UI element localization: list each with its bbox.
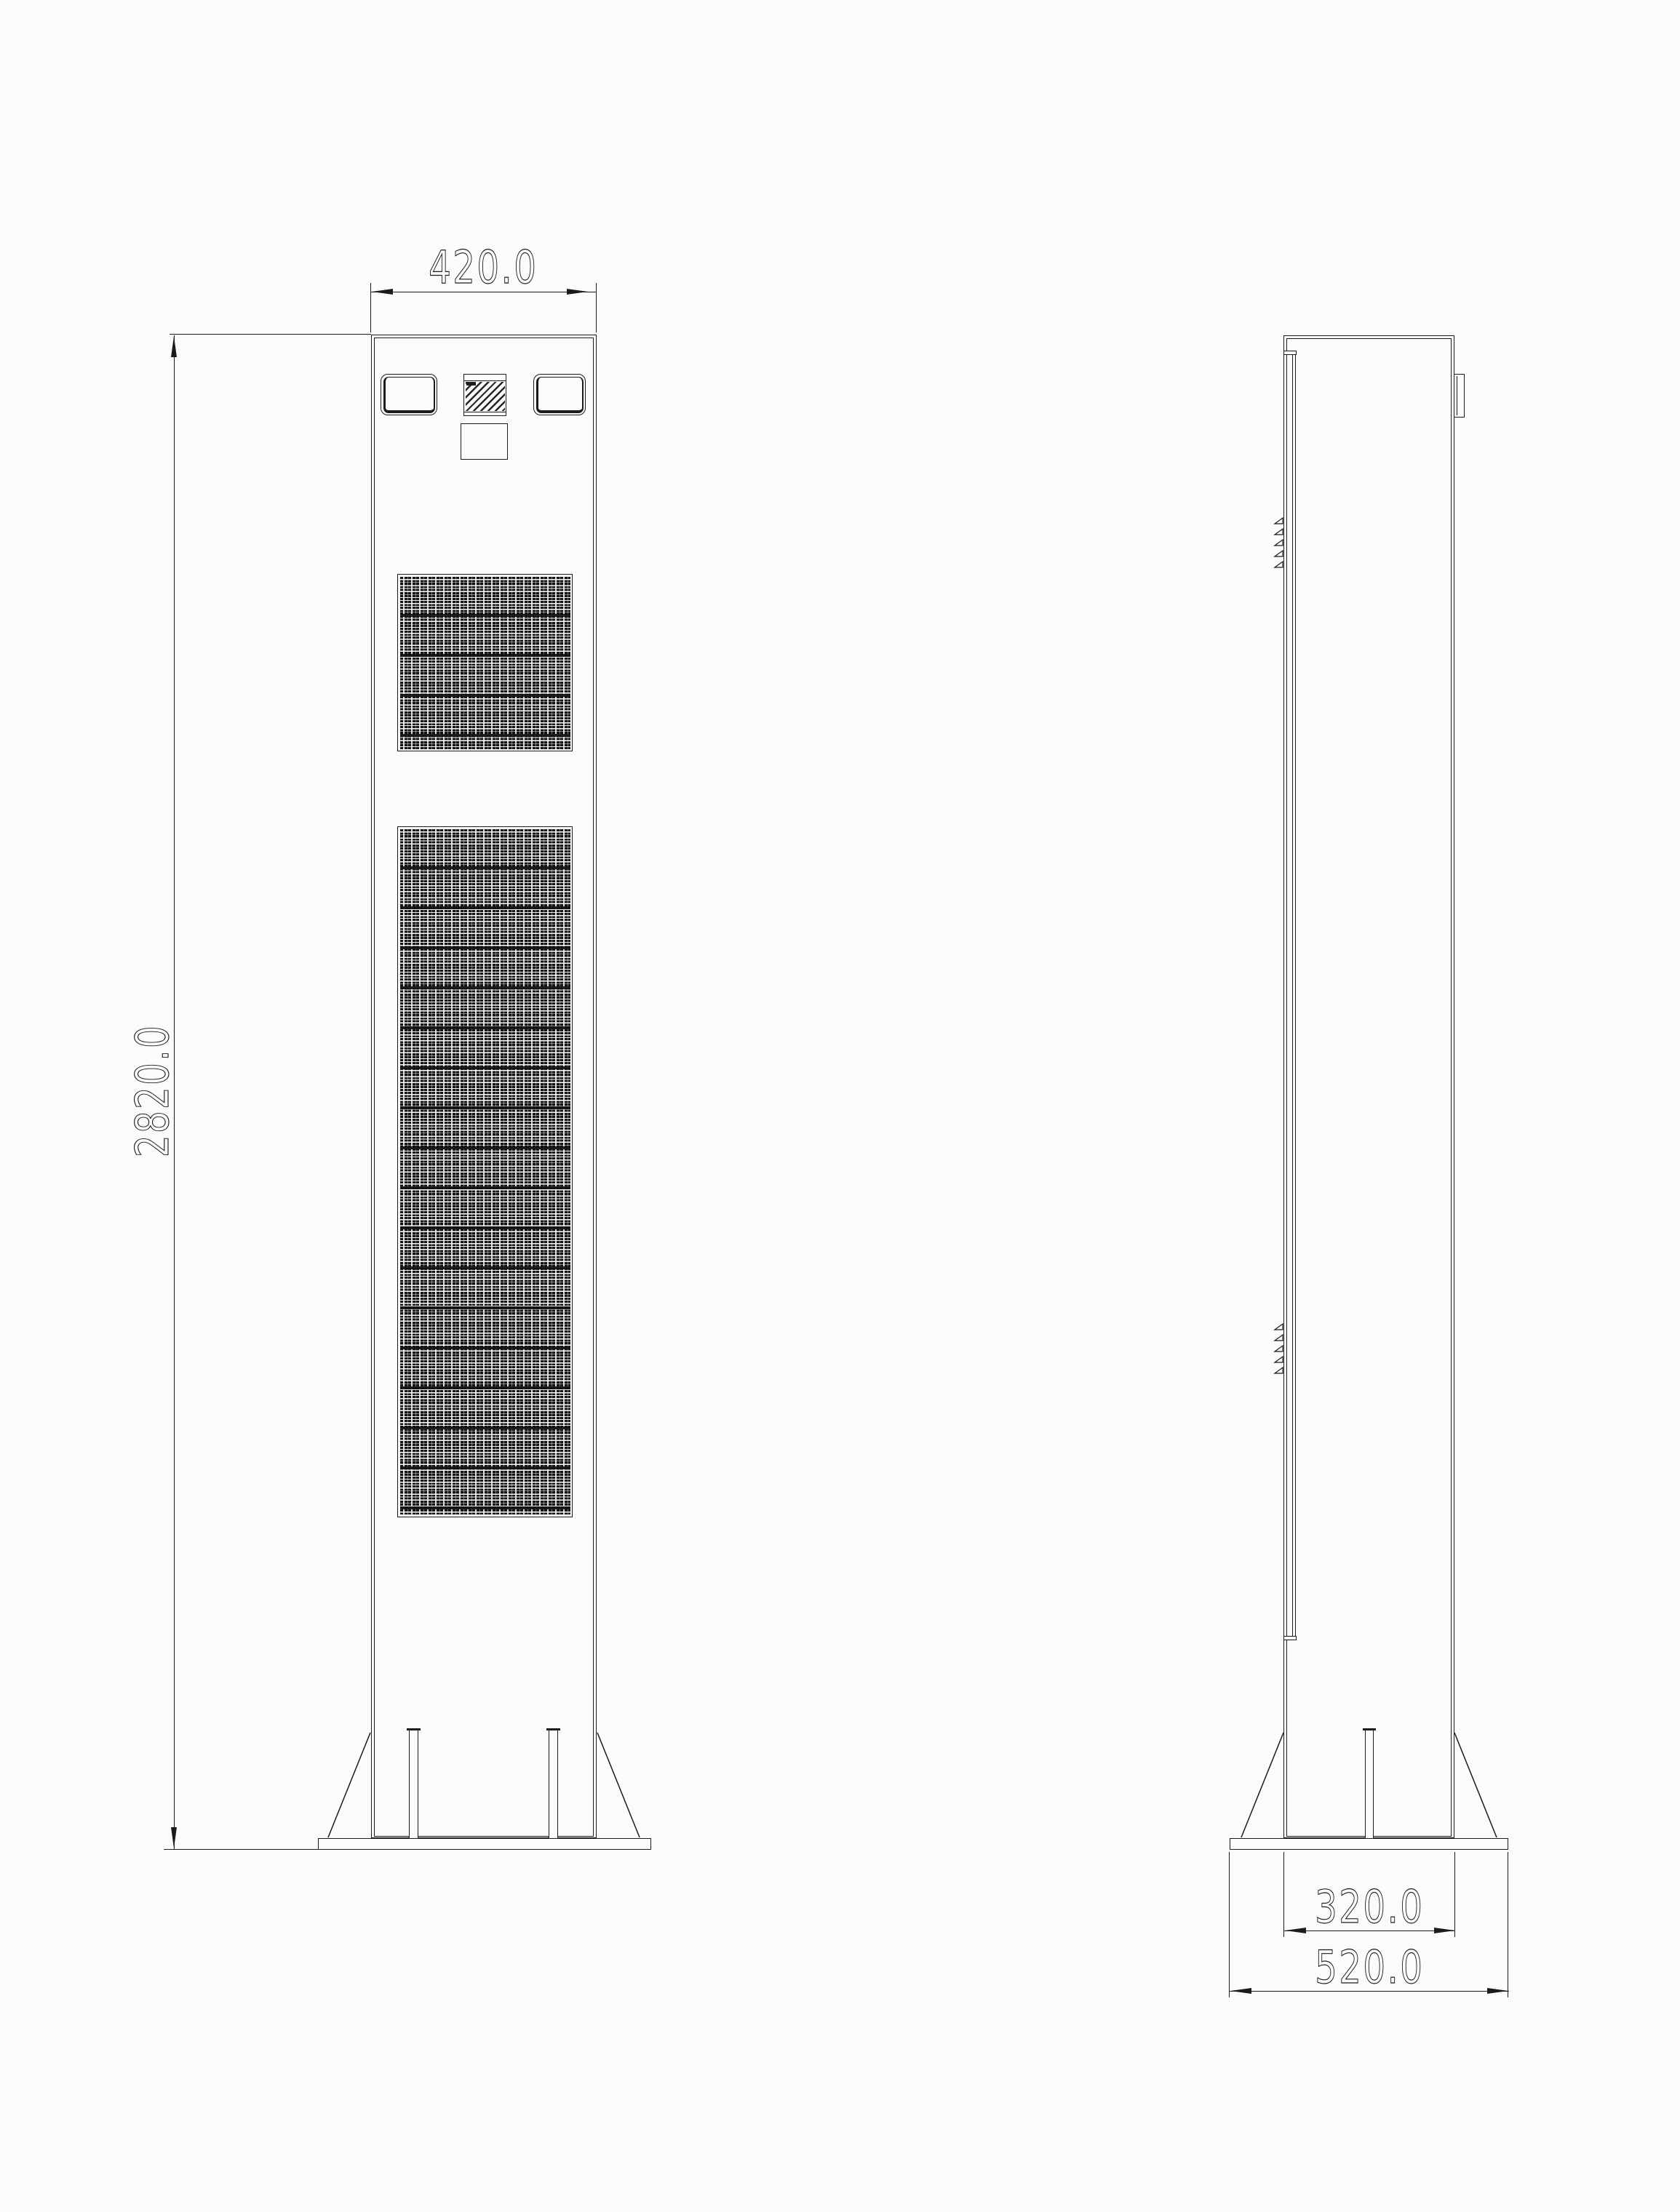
- louver-tick-mark: [1275, 1324, 1283, 1330]
- diagonal-lines-layer: [0, 0, 1680, 2212]
- louver-tick-mark: [1275, 551, 1283, 556]
- louver-tick-mark: [1275, 529, 1283, 535]
- front-gusset-right: [597, 1733, 640, 1837]
- louver-tick-mark: [1275, 540, 1283, 546]
- louver-tick-mark: [1275, 1335, 1283, 1341]
- louver-tick-mark: [1275, 1346, 1283, 1351]
- louver-tick-mark: [1275, 1367, 1283, 1373]
- louver-tick-mark: [1275, 1357, 1283, 1362]
- side-gusset-right: [1454, 1733, 1497, 1837]
- louver-tick-mark: [1275, 562, 1283, 567]
- drawing-canvas: 420.0 2820.0: [0, 0, 1680, 2212]
- front-gusset-left: [328, 1733, 370, 1837]
- louver-ticks-upper: [1275, 518, 1283, 567]
- louver-ticks-lower: [1275, 1324, 1283, 1373]
- louver-tick-mark: [1275, 518, 1283, 524]
- side-gusset-left: [1241, 1733, 1283, 1837]
